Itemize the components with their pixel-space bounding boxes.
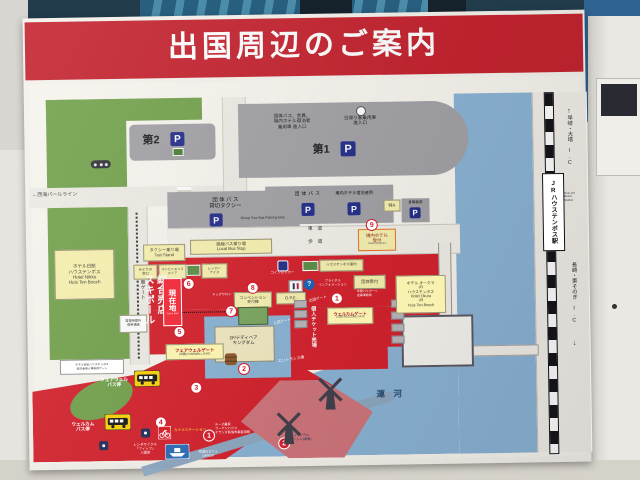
traffic-dot: [94, 163, 97, 166]
traffic-dot: [105, 163, 108, 166]
nikko-gate-note: ホテル日航ハウステンボス 宿泊者用入場専用ゲート: [60, 359, 124, 375]
barrel-icon: [224, 353, 238, 365]
num-5: 5: [177, 328, 181, 335]
toku-a-box: 特A: [383, 200, 400, 212]
toilet-figure: [297, 283, 299, 289]
welcome-bus-stop-label: ウェルカム バス停: [65, 421, 101, 432]
bus-icon: [134, 370, 160, 386]
num-2: 2: [242, 365, 246, 372]
attraction-1: 1: [207, 432, 211, 439]
information-icon: ?: [304, 279, 315, 290]
parking2-name: 第2: [142, 134, 159, 146]
okura-building: [401, 314, 474, 367]
convention-building: [238, 307, 268, 325]
local-bus-stop-bar: 路線バス乗り場 Local Bus Stop: [190, 239, 272, 255]
rentcycle-label: レンタサイクル 「フィッツ」 入園店: [125, 442, 165, 455]
arrow-down-icon: ↓: [573, 340, 577, 347]
coin-locker-label: コインロッカー: [264, 270, 300, 275]
facility-mini-icon: [141, 428, 150, 437]
canal-label: 運 河: [376, 389, 402, 399]
ice-shop-box: レッカー アイス: [201, 263, 227, 278]
parking2-tree-icon: [173, 148, 184, 156]
hotel-reception-en: Hotel Reception: [368, 243, 387, 246]
gate-stub: [392, 335, 405, 343]
bicycle-icon: [158, 426, 171, 439]
num-6: 6: [187, 280, 191, 287]
p-letter: P: [213, 215, 219, 225]
hotel-reception-box: 場内ホテル 受付 Hotel Reception: [358, 229, 396, 252]
bus-icon: [105, 414, 131, 430]
local-bus-stop-label: 路線バス乗り場 Local Bus Stop: [216, 242, 246, 252]
parking2-label: 第2: [142, 134, 159, 147]
gate-stub: [294, 320, 307, 328]
hotel-nikko-label: ホテル日航 ハウステンボス Hotel Nikko Huis Ten Bosch: [54, 249, 115, 300]
group-bus-taxi-p-icon: P: [210, 213, 223, 226]
parking1-name: 第1: [312, 144, 329, 156]
hotel-guest-p-icon: P: [347, 202, 360, 215]
teddy-bear-label: 2F/テディベア キングダム: [215, 335, 271, 346]
taxi-stand-box: タクシー乗り場 Taxi Stand: [143, 244, 185, 262]
attraction-1-circle: 1: [203, 429, 215, 441]
hotel-okura-label: ホテル オークラ JR ハウステンボス Hotel Okura JR Huis …: [396, 275, 447, 314]
parking1-p-icon: P: [340, 141, 355, 156]
jr-station-en: Huis Ten Bosch Station: [564, 192, 575, 202]
ic-north-text: 早岐・大塔 I.C: [565, 115, 574, 179]
welcome-gate-en: (入国) WELCOME GATE: [336, 317, 365, 320]
current-location-en: You're here: [167, 312, 179, 315]
jr-station-label: JRハウステンボス駅: [549, 180, 559, 244]
welcome-gate-box: ウェルカムゲート (入国) WELCOME GATE: [327, 307, 373, 325]
entrance-group-label: 団体バス、会員、 場内ホテル宿泊者 乗用車 進入口: [264, 113, 320, 130]
park-green-left: [46, 99, 127, 194]
parking1-label: 第1: [312, 144, 329, 157]
num-7: 7: [229, 308, 233, 315]
p-letter: P: [305, 204, 311, 214]
kiosk-screen: [601, 84, 637, 116]
shadou-label: 車 道: [308, 227, 322, 233]
canal-station-label: カナルステーション: [174, 428, 206, 433]
attraction-1-label: チーズ農家 ブーケンハウス オランダ民族衣裳着用館: [215, 423, 261, 435]
parking2-p-icon: P: [170, 132, 184, 146]
parking-lot-1: [238, 100, 469, 178]
gate-stub: [391, 323, 404, 331]
entrance-day-label: 日帰り客乗用車 進入口: [340, 115, 380, 126]
group-desk-box: 団体受付: [354, 275, 386, 290]
toilet-icon: [289, 280, 303, 292]
cafest-label: 花畑のカフェ CAFEST: [191, 450, 225, 458]
annual-pass-label: 年間パスポート 会員事務局: [357, 290, 387, 298]
farewell-gate-en: (出国) FAREWELL GATE: [179, 352, 210, 356]
arrow-up-icon: ↑: [567, 108, 571, 115]
windmill-icon: [316, 377, 344, 409]
toilet-figure: [292, 283, 294, 289]
ic-south-label: 長崎・東そのぎ I.C ↓: [569, 262, 578, 347]
pearl-line-label: ←西海パールライン: [32, 193, 77, 200]
background-left-column: [0, 150, 26, 480]
group-bus-taxi-label: 団 体 バ ス 貸切タクシー: [185, 197, 265, 211]
personal-ticket-label: 個人チケット売場: [310, 306, 317, 354]
num-4: 4: [159, 419, 163, 426]
nikko-gate-note-label: ホテル日航ハウステンボス 宿泊者用入場専用ゲート: [75, 363, 109, 370]
canal-boat-icon: [165, 444, 189, 459]
gate-circle-icon: [356, 106, 366, 116]
group-bus-p-icon: P: [301, 203, 314, 216]
question-glyph: ?: [307, 281, 311, 288]
facility-mini-icon: [99, 441, 108, 450]
windmill-icon: [275, 412, 303, 444]
current-location-label: 現在地: [167, 289, 178, 312]
shop-icons-box: [186, 265, 200, 276]
background-wall-dot: [612, 304, 617, 309]
group-bus-label: 団体バス: [287, 192, 329, 198]
guide-sign-board: 出国周辺のご案内 第2 P 第1 P 団体バス、会員、 場内ホテル宿泊者 乗用車…: [22, 10, 591, 471]
p-letter: P: [351, 204, 357, 214]
num-9: 9: [370, 221, 374, 228]
farewell-bus-stop-label: フェアウェル バス停: [96, 377, 132, 388]
gate-stub: [294, 310, 307, 318]
station-land-band: [532, 92, 593, 453]
num-3: 3: [194, 384, 198, 391]
p-letter: P: [344, 143, 352, 155]
disabled-parking-label: 身障者用: [400, 200, 430, 205]
info-icons-box: [302, 261, 318, 271]
htb-annai-box: ハウステンボス案内: [319, 259, 363, 272]
traffic-light-icon: [91, 160, 111, 168]
disabled-p-icon: P: [410, 207, 421, 218]
jr-station-box: JRハウステンボス駅: [542, 173, 565, 251]
gate-stub: [294, 300, 307, 308]
ic-north-label: ↑ 早岐・大塔 I.C: [565, 108, 574, 179]
ic-south-text: 長崎・東そのぎ I.C: [569, 262, 578, 340]
p-letter: P: [174, 133, 181, 144]
hodou-label: 歩 道: [308, 240, 322, 246]
taxi-stand-label: タクシー乗り場 Taxi Stand: [149, 248, 178, 258]
num-7-circle: 7: [225, 305, 237, 317]
num-1: 1: [335, 295, 339, 302]
traffic-dot: [99, 163, 102, 166]
dog-salon-label: ドッグサロン: [210, 293, 234, 297]
current-location-badge: 現在地 You're here: [163, 278, 183, 326]
farewell-gate-box: フェアウェルゲート (出国) FAREWELL GATE: [166, 343, 224, 360]
hotel-guest-parking-label: 場内ホテル宿泊者用: [331, 191, 377, 197]
p-letter: P: [412, 208, 417, 217]
num-8: 8: [251, 284, 255, 291]
bridal-info-label: ブライダル インフォメーション: [315, 279, 351, 287]
